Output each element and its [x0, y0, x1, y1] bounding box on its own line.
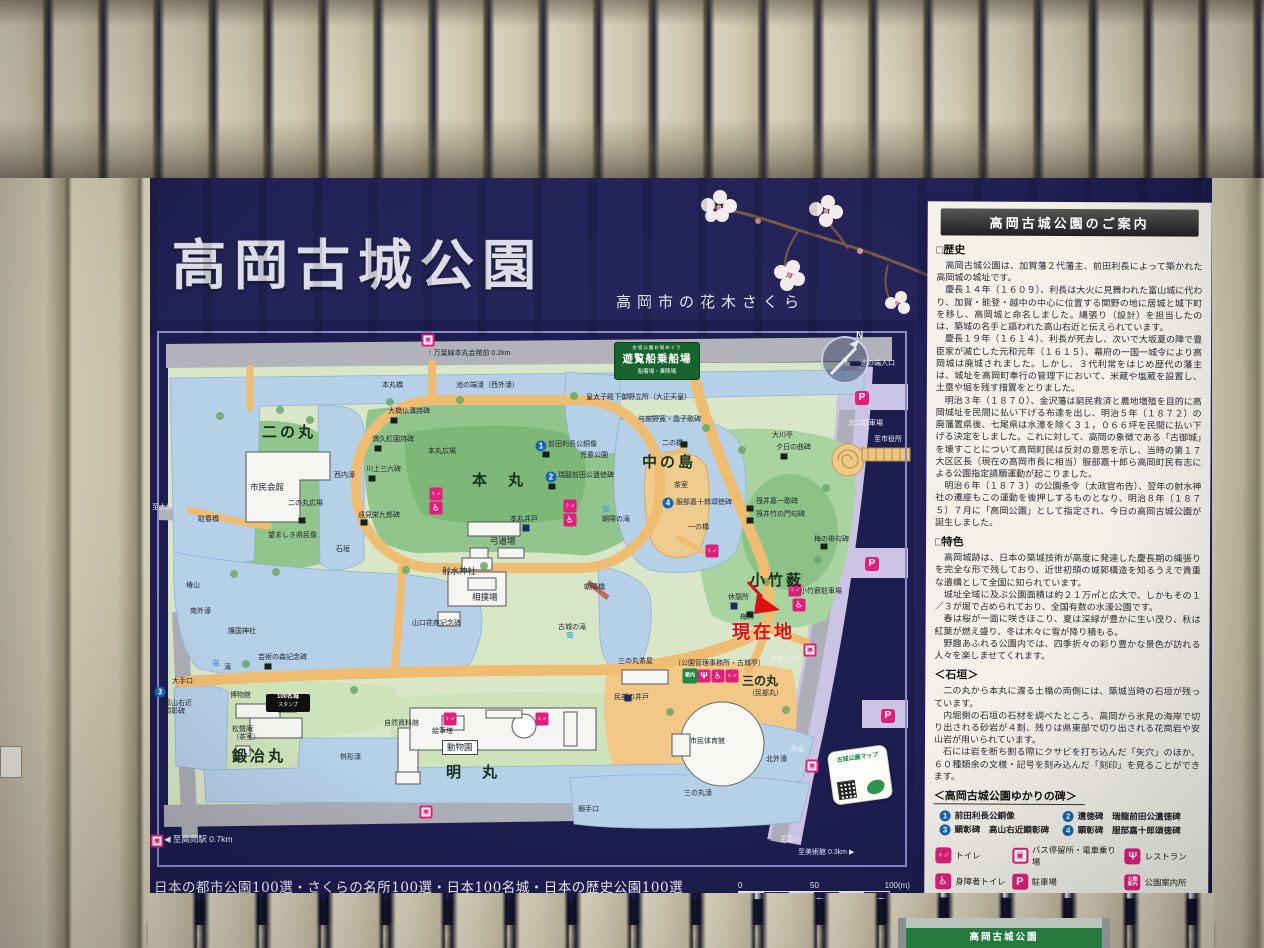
boat-dock-line3: 船着場・乗降場	[615, 367, 699, 375]
legend-label: 駐車場	[1032, 876, 1057, 888]
monument-item: 4 顕彰碑 服部嘉十郎頌徳碑	[1063, 824, 1200, 837]
monument-item: 3 顕彰碑 高山右近顕彰碑	[940, 823, 1059, 836]
scale-50: 50	[810, 881, 819, 890]
small-white-tag	[0, 746, 22, 778]
cherry-blossom-illustration	[638, 187, 948, 317]
wheelchair-icon: ♿	[935, 873, 951, 889]
features-heading: □特色	[935, 533, 1201, 550]
history-paragraph: 慶長１９年（１６１４）、利長が死去し、次いで大坂夏の陣で豊臣家が滅亡した元和元年…	[936, 333, 1202, 396]
qr-code	[837, 780, 857, 800]
history-heading: □歴史	[937, 241, 1203, 258]
boat-dock-sign: 古城公園お堀めぐり 遊覧船乗船場 船着場・乗降場	[614, 342, 700, 380]
scale-0: 0	[738, 881, 742, 890]
monument-label: 前田利長公銅像	[955, 810, 1015, 822]
scale-100: 100(m)	[885, 881, 910, 890]
monument-item: 1 前田利長公銅像	[940, 809, 1059, 822]
svg-text:N: N	[856, 330, 863, 341]
history-paragraph: 慶長１４年（１６０９）、利長は大火に見舞われた富山城に代わり、加賀・能登・越中の…	[936, 284, 1202, 334]
legend-parking: P 駐車場	[1012, 874, 1121, 891]
stonewall-paragraph: 石には岩を断ち割る際にクサビを打ち込んだ「矢穴」のほか、６０種類余の文様・記号を…	[934, 746, 1200, 784]
features-paragraph: 高岡城跡は、日本の築城技術が高度に発達した慶長期の縄張りを完全な形で残しており、…	[935, 551, 1201, 589]
park-map: N 古城公園お堀めぐり 遊覧船乗船場 船着場・乗降場 100名城 スタンプ	[150, 320, 914, 900]
toilet-icon: ♀♂	[935, 847, 951, 863]
legend-label: レストラン	[1145, 851, 1187, 863]
legend-label: トイレ	[955, 850, 980, 862]
stonewall-heading: ＜石垣＞	[934, 667, 1200, 684]
monument-item: 2 遺徳碑 瑞龍前田公遺徳碑	[1063, 810, 1200, 823]
small-kiosk-sign: 高岡古城公園	[898, 918, 1110, 948]
bus-icon: ▣	[1012, 848, 1028, 864]
legend-label: バス停留所・電車乗り場	[1032, 844, 1121, 868]
photo-of-park-sign: 高岡古城公園 高岡市の花木さくら	[0, 0, 1264, 948]
wooden-lattice-right	[1212, 178, 1264, 948]
qr-sticker-label: 古城公園マップ	[828, 748, 887, 765]
stonewall-paragraph: 内堀側の石垣の石材を調べたところ、高岡から氷見の海岸で切り出される砂岩が４割、残…	[934, 709, 1200, 747]
monument-number-2: 2	[1063, 811, 1074, 822]
features-paragraph: 野趣あふれる公園内では、四季折々の彩り豊かな景色が訪れる人々を楽しませてくれます…	[934, 637, 1200, 663]
monument-number-1: 1	[940, 810, 951, 821]
sign-board: 高岡古城公園 高岡市の花木さくら	[148, 175, 1214, 900]
monument-label: 顕彰碑 服部嘉十郎頌徳碑	[1078, 824, 1181, 837]
map-legend: ♀♂ トイレ ▣ バス停留所・電車乗り場 Ψ レストラン ♿ 身障者トイレ P	[933, 843, 1199, 890]
history-paragraph: 高岡古城公園は、加賀藩２代藩主、前田利長によって築かれた高岡城の城址です。	[936, 259, 1202, 285]
wooden-lattice-left	[0, 178, 150, 948]
kiosk-post	[898, 918, 906, 948]
parking-icon: P	[1012, 874, 1028, 890]
park-info-icon: 公園 案内	[1125, 874, 1141, 890]
kiosk-post	[1102, 918, 1110, 948]
boat-dock-line2: 遊覧船乗船場	[615, 351, 699, 366]
wooden-lattice-top	[0, 0, 1264, 178]
monument-number-3: 3	[940, 824, 951, 835]
kiosk-title: 高岡古城公園	[906, 928, 1102, 948]
monument-number-4: 4	[1063, 825, 1074, 836]
park-map-qr-sticker: 古城公園マップ	[827, 744, 894, 806]
legend-accessible-toilet: ♿ 身障者トイレ	[935, 873, 1008, 889]
legend-label: 身障者トイレ	[955, 876, 1005, 888]
legend-bus-stop: ▣ バス停留所・電車乗り場	[1012, 844, 1121, 869]
stonewall-paragraph: 二の丸から本丸に渡る土橋の両側には、築城当時の石垣が残っています。	[934, 685, 1200, 711]
map-artwork: N	[150, 320, 914, 900]
history-paragraph: 明治３年（１８７０）、金沢藩は窮民救済と農地増殖を目的に高岡城址を民間に払い下げ…	[935, 394, 1201, 481]
features-paragraph: 城址全域に及ぶ公園面積は約２１万㎡と広大で、しかもその１／３が堀で占められており…	[935, 588, 1201, 614]
leaf-icon	[866, 779, 886, 795]
restaurant-icon: Ψ	[1125, 848, 1141, 864]
panel-header: 高岡古城公園のご案内	[941, 208, 1199, 236]
monuments-list: 1 前田利長公銅像 2 遺徳碑 瑞龍前田公遺徳碑 3 顕彰碑 高山右近顕彰碑 4…	[940, 809, 1200, 836]
info-panel: 高岡古城公園のご案内 □歴史 高岡古城公園は、加賀藩２代藩主、前田利長によって築…	[924, 201, 1212, 898]
castle-stamp-badge: 100名城 スタンプ	[266, 694, 310, 712]
legend-toilet: ♀♂ トイレ	[935, 843, 1008, 867]
legend-restaurant: Ψ レストラン	[1125, 844, 1198, 868]
park-title: 高岡古城公園	[172, 221, 572, 300]
monuments-heading: ＜高岡古城公園ゆかりの碑＞	[934, 787, 1085, 805]
monument-label: 遺徳碑 瑞龍前田公遺徳碑	[1078, 810, 1181, 823]
history-paragraph: 明治６年（１８７３）の公園条令（太政官布告）、翌年の射水神社の遷座もこの運動を後…	[935, 480, 1201, 530]
monument-label: 顕彰碑 高山右近顕彰碑	[955, 824, 1050, 836]
legend-park-info: 公園 案内 公園案内所	[1125, 874, 1198, 890]
features-paragraph: 春は桜が一面に咲きほこり、夏は深緑が豊かに生い茂り、秋は紅葉が燃え盛り、冬は木々…	[935, 613, 1201, 639]
legend-label: 公園案内所	[1145, 877, 1187, 889]
